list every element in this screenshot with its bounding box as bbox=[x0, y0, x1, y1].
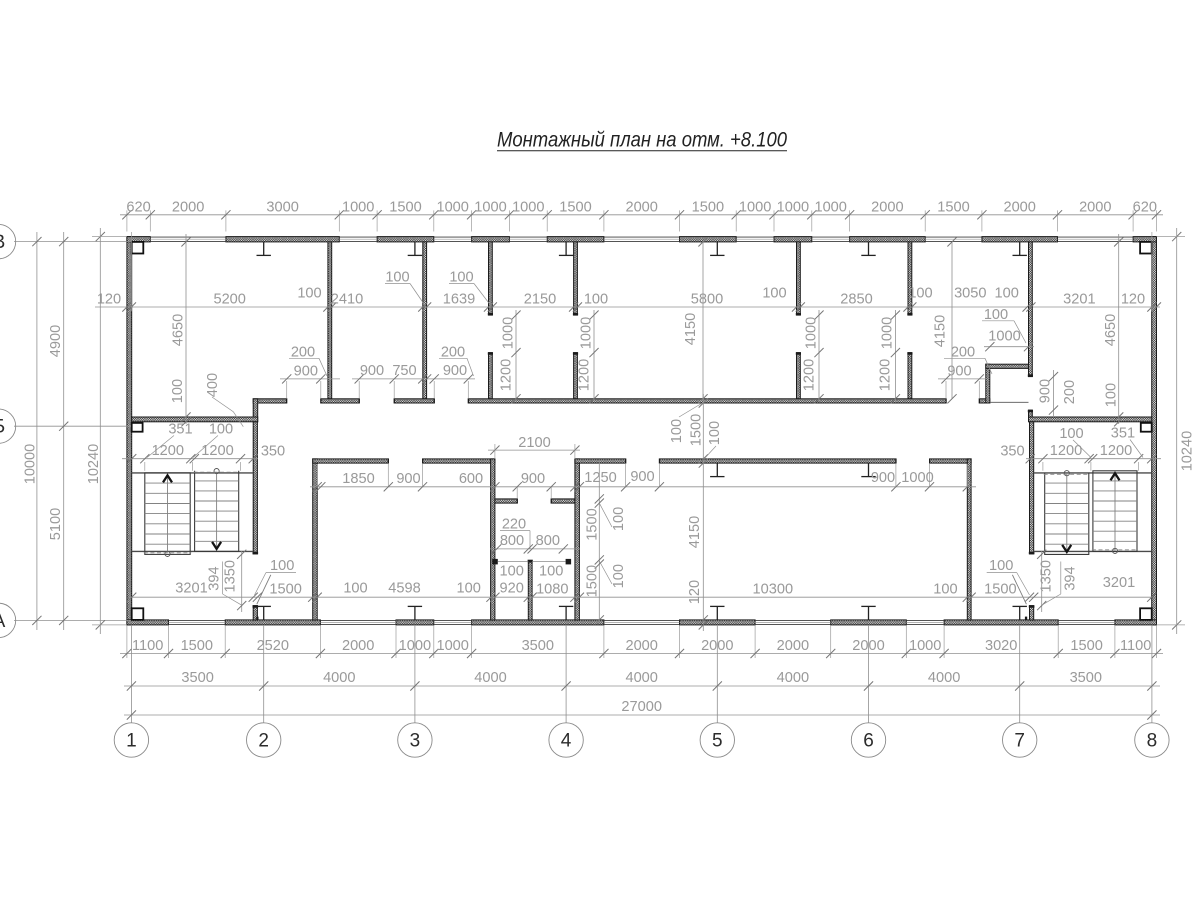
svg-text:100: 100 bbox=[933, 582, 957, 598]
svg-text:100: 100 bbox=[995, 286, 1019, 302]
svg-text:1200: 1200 bbox=[498, 359, 514, 391]
svg-text:10240: 10240 bbox=[1179, 431, 1195, 472]
svg-text:100: 100 bbox=[170, 379, 186, 403]
svg-text:800: 800 bbox=[536, 533, 560, 549]
svg-text:1500: 1500 bbox=[269, 582, 301, 598]
svg-text:4650: 4650 bbox=[1103, 314, 1119, 346]
svg-text:1200: 1200 bbox=[152, 443, 184, 459]
svg-text:4000: 4000 bbox=[323, 670, 355, 686]
svg-text:351: 351 bbox=[1111, 426, 1135, 442]
svg-text:620: 620 bbox=[126, 200, 150, 216]
svg-text:1350: 1350 bbox=[1038, 560, 1054, 592]
svg-text:1000: 1000 bbox=[988, 329, 1020, 345]
svg-text:1100: 1100 bbox=[132, 638, 163, 654]
svg-text:750: 750 bbox=[392, 363, 416, 379]
svg-text:3050: 3050 bbox=[954, 286, 986, 302]
svg-text:900: 900 bbox=[1037, 379, 1053, 403]
svg-text:100: 100 bbox=[1059, 426, 1083, 442]
svg-text:4150: 4150 bbox=[932, 315, 948, 347]
svg-text:100: 100 bbox=[611, 564, 627, 588]
svg-text:1000: 1000 bbox=[436, 200, 468, 216]
svg-text:100: 100 bbox=[1104, 383, 1120, 407]
svg-text:В: В bbox=[0, 232, 5, 253]
svg-text:100: 100 bbox=[297, 286, 321, 302]
svg-text:4598: 4598 bbox=[388, 581, 420, 597]
svg-text:1500: 1500 bbox=[692, 200, 724, 216]
svg-text:100: 100 bbox=[989, 558, 1013, 574]
svg-text:394: 394 bbox=[206, 566, 222, 590]
svg-text:2000: 2000 bbox=[1079, 200, 1111, 216]
svg-text:4650: 4650 bbox=[170, 314, 186, 346]
svg-text:900: 900 bbox=[630, 469, 654, 485]
svg-text:Монтажный план на отм. +8.100: Монтажный план на отм. +8.100 bbox=[497, 129, 787, 152]
svg-text:1500: 1500 bbox=[1070, 638, 1102, 654]
svg-text:4000: 4000 bbox=[474, 670, 506, 686]
svg-text:351: 351 bbox=[168, 422, 192, 438]
svg-text:1100: 1100 bbox=[1120, 638, 1151, 654]
svg-text:1500: 1500 bbox=[559, 200, 591, 216]
svg-text:1000: 1000 bbox=[342, 200, 374, 216]
svg-text:1639: 1639 bbox=[443, 292, 475, 308]
svg-text:900: 900 bbox=[443, 363, 467, 379]
svg-text:1000: 1000 bbox=[474, 200, 506, 216]
svg-text:350: 350 bbox=[1000, 443, 1024, 459]
svg-text:2000: 2000 bbox=[172, 200, 204, 216]
svg-text:1200: 1200 bbox=[1100, 443, 1132, 459]
svg-text:2000: 2000 bbox=[342, 638, 374, 654]
svg-text:120: 120 bbox=[1121, 292, 1145, 308]
svg-text:2000: 2000 bbox=[871, 200, 903, 216]
svg-text:10000: 10000 bbox=[22, 444, 38, 485]
svg-text:2000: 2000 bbox=[701, 638, 733, 654]
svg-text:100: 100 bbox=[449, 270, 473, 286]
svg-text:1000: 1000 bbox=[901, 470, 933, 486]
svg-text:3201: 3201 bbox=[1063, 292, 1095, 308]
svg-text:2000: 2000 bbox=[625, 200, 657, 216]
svg-text:4000: 4000 bbox=[928, 670, 960, 686]
svg-text:100: 100 bbox=[209, 422, 233, 438]
svg-text:200: 200 bbox=[291, 344, 315, 360]
svg-text:2000: 2000 bbox=[1003, 200, 1035, 216]
svg-text:2410: 2410 bbox=[331, 292, 363, 308]
svg-text:3500: 3500 bbox=[181, 670, 213, 686]
svg-text:3000: 3000 bbox=[266, 200, 298, 216]
svg-text:1000: 1000 bbox=[436, 638, 468, 654]
svg-text:350: 350 bbox=[261, 443, 285, 459]
svg-text:2: 2 bbox=[258, 731, 269, 752]
svg-text:100: 100 bbox=[707, 421, 723, 445]
svg-text:3201: 3201 bbox=[1103, 575, 1135, 591]
svg-text:1200: 1200 bbox=[1050, 443, 1082, 459]
svg-text:620: 620 bbox=[1133, 200, 1157, 216]
svg-text:900: 900 bbox=[871, 470, 895, 486]
svg-text:100: 100 bbox=[457, 581, 481, 597]
svg-text:920: 920 bbox=[500, 581, 524, 597]
svg-text:1000: 1000 bbox=[803, 317, 819, 349]
svg-text:600: 600 bbox=[459, 471, 483, 487]
svg-text:2000: 2000 bbox=[777, 638, 809, 654]
svg-text:4000: 4000 bbox=[625, 670, 657, 686]
svg-text:200: 200 bbox=[1062, 380, 1078, 404]
svg-text:100: 100 bbox=[908, 286, 932, 302]
svg-text:1350: 1350 bbox=[222, 560, 238, 592]
svg-text:100: 100 bbox=[385, 270, 409, 286]
svg-text:1500: 1500 bbox=[181, 638, 213, 654]
svg-text:1000: 1000 bbox=[909, 638, 941, 654]
svg-text:900: 900 bbox=[947, 364, 971, 380]
svg-text:1500: 1500 bbox=[688, 414, 704, 446]
svg-text:8: 8 bbox=[1147, 731, 1158, 752]
svg-text:1200: 1200 bbox=[801, 359, 817, 391]
svg-text:1200: 1200 bbox=[576, 359, 592, 391]
svg-text:394: 394 bbox=[1063, 566, 1079, 590]
svg-text:2000: 2000 bbox=[852, 638, 884, 654]
svg-text:27000: 27000 bbox=[621, 699, 662, 715]
svg-text:1250: 1250 bbox=[584, 470, 616, 486]
svg-text:4: 4 bbox=[561, 731, 572, 752]
svg-text:1000: 1000 bbox=[739, 200, 771, 216]
svg-text:100: 100 bbox=[669, 419, 685, 443]
svg-text:5: 5 bbox=[712, 731, 723, 752]
svg-text:2850: 2850 bbox=[840, 292, 872, 308]
svg-text:100: 100 bbox=[584, 292, 608, 308]
svg-text:4900: 4900 bbox=[48, 325, 64, 357]
svg-text:100: 100 bbox=[984, 307, 1008, 323]
svg-text:1000: 1000 bbox=[777, 200, 809, 216]
svg-text:1500: 1500 bbox=[585, 508, 601, 540]
svg-text:3020: 3020 bbox=[985, 638, 1017, 654]
svg-text:3201: 3201 bbox=[175, 581, 207, 597]
svg-text:5200: 5200 bbox=[213, 292, 245, 308]
svg-text:4150: 4150 bbox=[683, 313, 699, 345]
svg-text:120: 120 bbox=[687, 580, 703, 604]
svg-text:А: А bbox=[0, 611, 6, 632]
svg-text:100: 100 bbox=[343, 581, 367, 597]
svg-text:1000: 1000 bbox=[399, 638, 431, 654]
svg-text:3500: 3500 bbox=[522, 638, 554, 654]
svg-text:1000: 1000 bbox=[500, 317, 516, 349]
svg-text:100: 100 bbox=[270, 558, 294, 574]
svg-text:Б: Б bbox=[0, 417, 5, 438]
svg-text:2150: 2150 bbox=[524, 292, 556, 308]
svg-text:400: 400 bbox=[205, 373, 221, 397]
svg-text:200: 200 bbox=[441, 344, 465, 360]
svg-text:1000: 1000 bbox=[512, 200, 544, 216]
svg-text:1000: 1000 bbox=[814, 200, 846, 216]
svg-text:2100: 2100 bbox=[518, 435, 550, 451]
svg-text:5100: 5100 bbox=[48, 508, 64, 540]
svg-text:1000: 1000 bbox=[880, 317, 896, 349]
svg-text:100: 100 bbox=[611, 507, 627, 531]
svg-text:1500: 1500 bbox=[389, 200, 421, 216]
svg-text:100: 100 bbox=[539, 563, 563, 579]
svg-text:4150: 4150 bbox=[687, 516, 703, 548]
svg-text:900: 900 bbox=[360, 363, 384, 379]
svg-text:900: 900 bbox=[396, 471, 420, 487]
svg-text:6: 6 bbox=[863, 731, 874, 752]
svg-text:1200: 1200 bbox=[878, 359, 894, 391]
svg-text:100: 100 bbox=[762, 286, 786, 302]
svg-text:1: 1 bbox=[126, 731, 137, 752]
svg-text:1500: 1500 bbox=[585, 565, 601, 597]
svg-text:7: 7 bbox=[1014, 731, 1025, 752]
svg-text:1850: 1850 bbox=[342, 471, 374, 487]
svg-text:1000: 1000 bbox=[578, 317, 594, 349]
svg-text:3500: 3500 bbox=[1070, 670, 1102, 686]
svg-text:900: 900 bbox=[294, 364, 318, 380]
svg-text:1500: 1500 bbox=[937, 200, 969, 216]
svg-text:200: 200 bbox=[951, 344, 975, 360]
svg-text:10240: 10240 bbox=[86, 444, 102, 485]
svg-text:1080: 1080 bbox=[536, 582, 568, 598]
svg-text:800: 800 bbox=[500, 533, 524, 549]
svg-text:5800: 5800 bbox=[691, 292, 723, 308]
svg-text:10300: 10300 bbox=[753, 582, 794, 598]
svg-text:4000: 4000 bbox=[777, 670, 809, 686]
svg-text:2520: 2520 bbox=[257, 638, 289, 654]
svg-text:900: 900 bbox=[521, 471, 545, 487]
svg-text:100: 100 bbox=[500, 563, 524, 579]
svg-text:3: 3 bbox=[410, 731, 421, 752]
svg-text:1500: 1500 bbox=[984, 582, 1016, 598]
svg-text:2000: 2000 bbox=[625, 638, 657, 654]
